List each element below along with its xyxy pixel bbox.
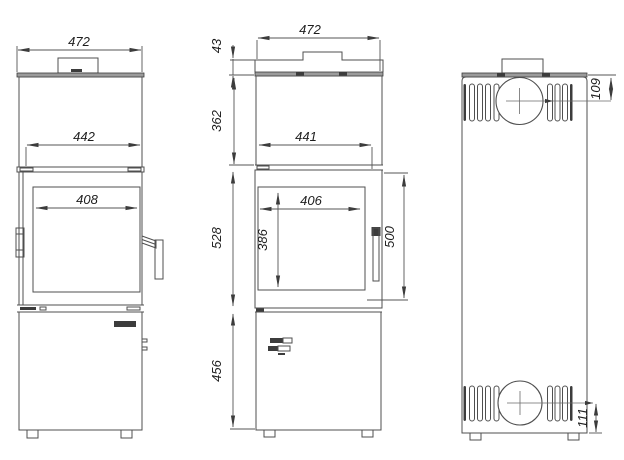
- vent-slot: [570, 386, 573, 421]
- vent-slot: [563, 84, 568, 121]
- dimension-label: 109: [588, 78, 603, 100]
- front-top-plate: [255, 72, 383, 76]
- side-rating-label: [114, 321, 136, 327]
- vent-slot: [486, 386, 491, 421]
- side-base-cabinet: [19, 312, 142, 430]
- vent-slot: [464, 84, 467, 121]
- dimension-label: 500: [382, 225, 397, 247]
- side-view-dimensions: 472 442 408: [17, 34, 142, 208]
- side-edge-clip: [142, 347, 147, 350]
- side-view: [16, 58, 163, 438]
- front-door: [255, 170, 382, 308]
- front-upper-body: [256, 76, 382, 165]
- foot: [121, 430, 132, 438]
- front-band-detail: [257, 166, 269, 169]
- side-upper-body: [19, 77, 142, 167]
- back-body: [462, 77, 587, 433]
- back-flue-collar: [502, 59, 543, 73]
- vent-slot: [478, 386, 483, 421]
- front-view-dimensions: 472 43 362 441 406 386 500 528 456: [209, 22, 408, 429]
- dimension-label: 441: [295, 129, 317, 144]
- vent-slot: [478, 84, 483, 121]
- dimension-label: 528: [209, 226, 224, 248]
- foot: [568, 433, 579, 440]
- vent-slot: [548, 386, 553, 421]
- leader-arrow: [585, 401, 593, 405]
- stove-three-view-drawing: 472 442 408: [0, 0, 624, 460]
- side-band-clip: [127, 307, 140, 310]
- foot: [362, 430, 373, 437]
- dimension-label: 386: [255, 228, 270, 250]
- back-top-plate: [462, 73, 587, 77]
- dimension-label: 43: [209, 38, 224, 53]
- vent-slot: [486, 84, 491, 121]
- dimension-label: 442: [73, 129, 95, 144]
- dimension-label: 362: [209, 109, 224, 131]
- dimension-label: 406: [300, 193, 322, 208]
- dimension-label: 408: [76, 192, 98, 207]
- vent-slot: [548, 84, 553, 121]
- foot: [27, 430, 38, 438]
- back-view-dimensions: 109 111: [575, 75, 616, 433]
- dimension-label: 111: [575, 408, 590, 428]
- side-top-plate: [17, 73, 144, 77]
- dimension-label: 456: [209, 359, 224, 381]
- vent-slot: [563, 386, 568, 421]
- leader-arrow: [545, 99, 553, 103]
- vent-slot: [464, 386, 467, 421]
- side-edge-clip: [142, 339, 147, 342]
- back-plate-mark: [542, 73, 550, 77]
- back-view: [462, 59, 611, 440]
- side-band-detail-right: [128, 168, 141, 171]
- front-door-handle: [372, 227, 381, 281]
- front-plate-mark: [296, 72, 304, 76]
- side-divider-band: [17, 167, 144, 172]
- vent-slot: [555, 84, 560, 121]
- front-band-mark: [256, 309, 264, 312]
- technical-drawing-canvas: 472 442 408: [0, 0, 624, 460]
- side-band-mark: [20, 307, 36, 310]
- vent-slot: [470, 386, 475, 421]
- vent-slot: [555, 386, 560, 421]
- side-band-clip: [40, 307, 46, 310]
- foot: [470, 433, 481, 440]
- front-base-cabinet: [256, 312, 381, 430]
- vent-slot: [570, 84, 573, 121]
- front-view: [255, 52, 383, 437]
- dimension-label: 472: [299, 22, 321, 37]
- back-plate-mark: [497, 73, 505, 77]
- foot: [264, 430, 275, 437]
- vent-slot: [470, 84, 475, 121]
- front-plate-mark: [339, 72, 347, 76]
- air-control-levers: [268, 338, 292, 355]
- side-collar-seal: [71, 69, 82, 72]
- side-door-handle: [142, 236, 163, 279]
- front-top-cap: [255, 52, 383, 72]
- side-band-detail-left: [20, 168, 33, 171]
- dimension-label: 472: [68, 34, 90, 49]
